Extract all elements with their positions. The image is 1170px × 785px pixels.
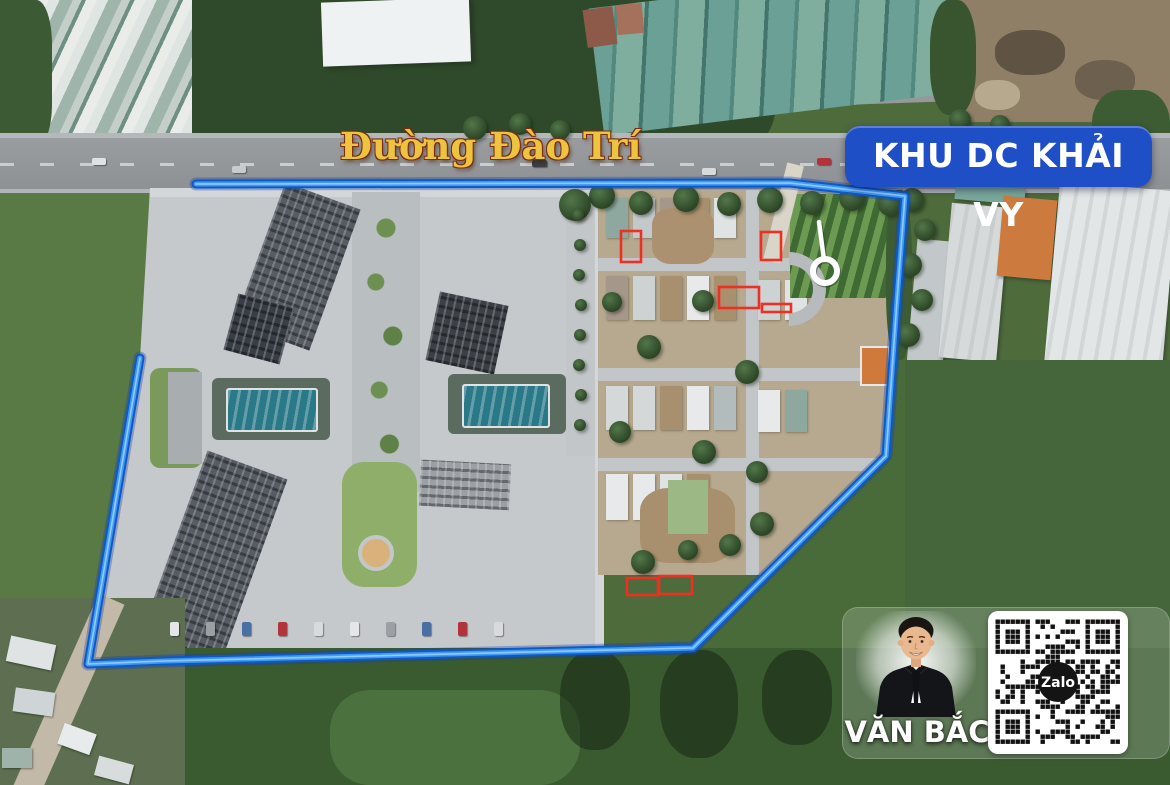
townhouse-roof: [714, 386, 736, 430]
zalo-logo-text: Zalo: [1041, 675, 1075, 691]
townhouse-roof: [660, 276, 682, 320]
building-part: [440, 255, 472, 279]
townhouse-roof: [687, 386, 709, 430]
street: [746, 190, 759, 575]
building-shadow: [560, 650, 630, 750]
building-part: [150, 257, 184, 283]
swimming-pool-east: [462, 384, 550, 428]
building-shadow: [762, 650, 832, 745]
warehouse-roof: [1044, 181, 1170, 371]
building-part: [543, 490, 577, 516]
townhouse-roof: [606, 198, 628, 238]
shed-orange-roof: [862, 348, 888, 384]
building-part: [200, 215, 240, 243]
townhouse-roof: [633, 276, 655, 320]
townhouse-roof: [660, 386, 682, 430]
building-shadow: [660, 650, 738, 758]
building-part: [425, 575, 595, 635]
townhouse-roof: [714, 198, 736, 238]
townhouse-roof: [785, 390, 807, 432]
townhouse-roof: [606, 276, 628, 320]
area-name-badge: KHU DC KHẢI VY: [845, 126, 1152, 187]
glass-tower-roof: [419, 460, 511, 511]
agent-portrait-graphic: [856, 611, 976, 717]
agent-contact-card: VĂN BẮC Zalo: [842, 607, 1170, 759]
townhouse-roof: [606, 386, 628, 430]
zalo-qr-code: Zalo: [988, 611, 1128, 754]
green-roof-house: [668, 480, 708, 534]
agent-photo: [856, 611, 976, 717]
townhouse-roof: [606, 474, 628, 520]
townhouse-roof: [714, 276, 736, 320]
townhouse-roof: [687, 276, 709, 320]
aerial-map-flyer: Đường Đào Trí KHU DC KHẢI VY: [0, 0, 1170, 785]
building-part: [530, 218, 566, 244]
dirt-mound: [652, 208, 714, 264]
agent-name: VĂN BẮC: [842, 715, 992, 749]
road-name-label: Đường Đào Trí: [318, 124, 663, 168]
townhouse-roof: [633, 386, 655, 430]
swimming-pool-west: [226, 388, 318, 432]
palm-grove: [330, 690, 580, 785]
glass-tower-roof: [425, 291, 508, 374]
townhouse-roof: [758, 390, 780, 432]
